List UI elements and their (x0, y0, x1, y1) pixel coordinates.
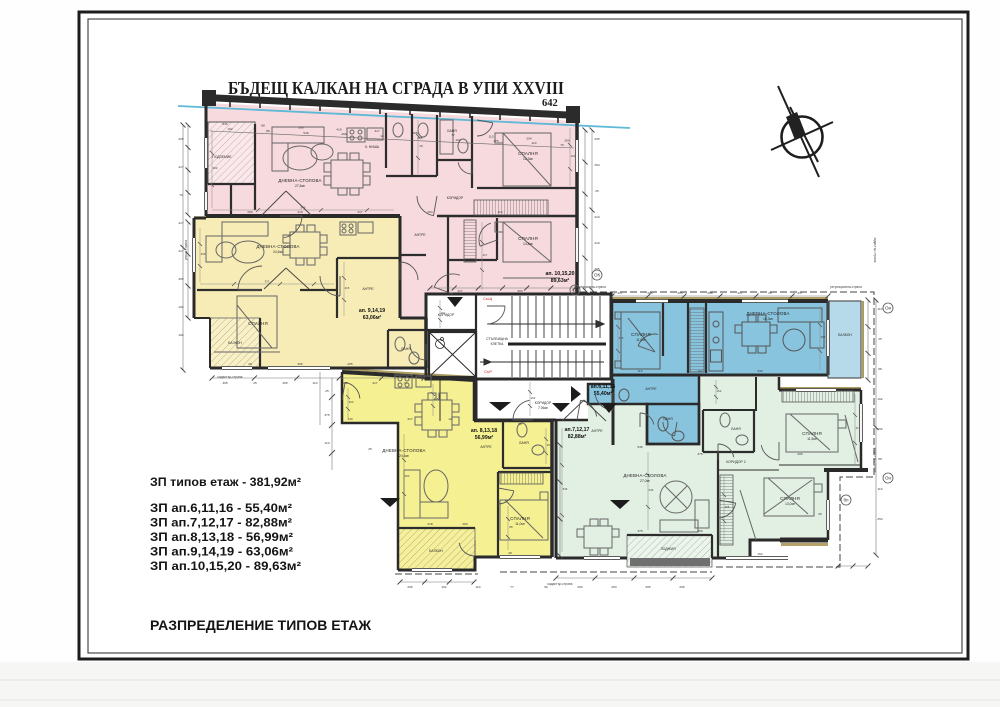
svg-text:417: 417 (372, 381, 377, 385)
svg-text:110: 110 (313, 381, 318, 385)
svg-text:110: 110 (476, 585, 481, 589)
svg-text:КОРИДОР: КОРИДОР (447, 196, 464, 200)
svg-text:КЛЕТКА: КЛЕТКА (491, 342, 505, 346)
svg-text:110: 110 (325, 441, 330, 445)
svg-text:254: 254 (821, 335, 826, 339)
svg-text:110: 110 (638, 369, 643, 373)
svg-text:77: 77 (403, 381, 407, 385)
svg-text:ЗП ап.6,11,16 - 55,40м²: ЗП ап.6,11,16 - 55,40м² (150, 501, 292, 515)
svg-text:162: 162 (227, 127, 232, 131)
svg-text:К. НИША: К. НИША (365, 145, 380, 149)
svg-text:288: 288 (707, 291, 712, 295)
svg-text:305: 305 (412, 131, 417, 135)
svg-text:162: 162 (531, 396, 536, 400)
svg-text:ап. 8,13,18: ап. 8,13,18 (471, 428, 497, 434)
svg-text:110: 110 (878, 487, 883, 491)
svg-text:СПАЛНЯ: СПАЛНЯ (248, 321, 268, 326)
svg-text:102: 102 (342, 381, 347, 385)
svg-text:417: 417 (178, 221, 183, 225)
svg-text:ДНЕВНА-СТОЛОВА: ДНЕВНА-СТОЛОВА (382, 448, 425, 453)
svg-text:110: 110 (878, 307, 883, 311)
svg-text:кадастър-страна: кадастър-страна (873, 238, 877, 263)
svg-text:7,06м²: 7,06м² (538, 406, 549, 410)
svg-text:205: 205 (797, 452, 802, 456)
svg-text:БАЛКОН: БАЛКОН (228, 341, 242, 345)
svg-text:11,0м²: 11,0м² (515, 522, 526, 526)
svg-text:546: 546 (303, 131, 308, 135)
svg-text:Он: Он (885, 476, 892, 481)
svg-text:88: 88 (266, 129, 270, 133)
svg-text:340: 340 (347, 417, 352, 421)
svg-text:305: 305 (725, 505, 730, 509)
svg-text:18,3м²: 18,3м² (763, 317, 774, 321)
svg-text:ЗП ап.9,14,19 - 63,06м²: ЗП ап.9,14,19 - 63,06м² (150, 545, 293, 559)
svg-text:25: 25 (595, 189, 599, 193)
svg-text:162: 162 (757, 552, 762, 556)
svg-text:417: 417 (797, 291, 802, 295)
svg-text:205: 205 (178, 137, 183, 141)
svg-text:СПАЛНЯ: СПАЛНЯ (518, 151, 538, 156)
svg-text:СъЩ: СъЩ (483, 296, 492, 301)
svg-text:кадастър-страна: кадастър-страна (218, 375, 243, 379)
svg-text:ЛОДЖИЯ: ЛОДЖИЯ (660, 547, 676, 551)
svg-text:417: 417 (617, 291, 622, 295)
svg-text:ОК: ОК (594, 273, 601, 278)
svg-text:СТЪЛБИЩНА: СТЪЛБИЩНА (486, 337, 509, 341)
svg-text:110: 110 (498, 210, 503, 214)
svg-text:205: 205 (677, 291, 682, 295)
svg-text:ПОДЗЕМИЕ: ПОДЗЕМИЕ (212, 155, 232, 159)
svg-text:24,6м²: 24,6м² (399, 454, 410, 458)
svg-text:27,6м²: 27,6м² (295, 184, 306, 188)
svg-text:КОРИДОР 2: КОРИДОР 2 (726, 460, 745, 464)
svg-text:417: 417 (457, 289, 462, 293)
svg-text:375: 375 (697, 452, 702, 456)
svg-text:БЪДЕЩ КАЛКАН НА СГРАДА В УПИ X: БЪДЕЩ КАЛКАН НА СГРАДА В УПИ XXVIII (228, 78, 564, 98)
svg-text:546: 546 (222, 122, 227, 126)
svg-text:205: 205 (407, 585, 412, 589)
svg-text:77: 77 (510, 585, 514, 589)
svg-text:КОРИДОР: КОРИДОР (535, 401, 552, 405)
svg-text:12,3м²: 12,3м² (523, 157, 534, 161)
svg-text:375: 375 (265, 280, 270, 284)
svg-text:70: 70 (179, 193, 183, 197)
svg-text:205: 205 (347, 362, 352, 366)
svg-text:205: 205 (645, 585, 650, 589)
svg-text:БАНЯ: БАНЯ (401, 347, 411, 351)
svg-text:254: 254 (526, 137, 531, 141)
svg-text:25: 25 (768, 291, 772, 295)
svg-text:БАЛКОН: БАЛКОН (429, 549, 443, 553)
svg-text:БАЛКОН: БАЛКОН (838, 333, 852, 337)
svg-text:417: 417 (407, 417, 412, 421)
svg-text:регулационна-страна: регулационна-страна (574, 285, 606, 289)
svg-text:305: 305 (222, 381, 227, 385)
svg-text:АНТРЕ: АНТРЕ (362, 287, 374, 291)
svg-text:205: 205 (647, 291, 652, 295)
svg-text:415: 415 (619, 336, 624, 340)
svg-text:417: 417 (374, 129, 379, 133)
svg-text:218: 218 (427, 522, 432, 526)
svg-text:102: 102 (178, 305, 183, 309)
svg-text:303: 303 (349, 400, 354, 404)
svg-text:260: 260 (577, 585, 582, 589)
svg-text:88: 88 (878, 457, 882, 461)
svg-text:СПАЛНЯ: СПАЛНЯ (780, 496, 800, 501)
svg-text:340: 340 (757, 369, 762, 373)
svg-text:417: 417 (483, 253, 488, 257)
svg-text:254: 254 (427, 210, 432, 214)
svg-text:303: 303 (201, 252, 206, 256)
svg-text:546: 546 (563, 487, 568, 491)
svg-text:260: 260 (405, 474, 410, 478)
svg-text:110: 110 (532, 141, 537, 145)
svg-text:регулационна-страна: регулационна-страна (830, 285, 862, 289)
svg-text:12: 12 (380, 134, 384, 138)
svg-text:546: 546 (649, 488, 654, 492)
svg-text:642: 642 (542, 98, 558, 109)
svg-text:БАНЯ: БАНЯ (731, 427, 741, 431)
svg-text:102: 102 (178, 333, 183, 337)
svg-text:27,0м²: 27,0м² (640, 479, 651, 483)
svg-text:260: 260 (462, 522, 467, 526)
svg-text:улица-страна: улица-страна (184, 240, 188, 260)
svg-text:55,40м²: 55,40м² (594, 391, 613, 397)
svg-text:102: 102 (455, 138, 460, 142)
svg-text:303: 303 (517, 289, 522, 293)
svg-text:АНТРЕ: АНТРЕ (480, 445, 492, 449)
svg-text:28: 28 (419, 144, 423, 148)
svg-text:28: 28 (508, 551, 512, 555)
svg-text:162: 162 (877, 397, 882, 401)
svg-text:417: 417 (357, 210, 362, 214)
svg-text:ЗП типов етаж - 381,92м²: ЗП типов етаж - 381,92м² (150, 475, 301, 489)
svg-text:13,0м²: 13,0м² (785, 502, 796, 506)
svg-text:63,06м²: 63,06м² (363, 315, 382, 321)
svg-text:ЗП ап.10,15,20 - 89,63м²: ЗП ап.10,15,20 - 89,63м² (150, 559, 301, 573)
svg-text:205: 205 (594, 137, 599, 141)
svg-text:БАНЯ: БАНЯ (663, 417, 673, 421)
svg-text:305: 305 (297, 362, 302, 366)
svg-text:110: 110 (489, 135, 494, 139)
svg-text:ЗП ап.7,12,17 - 82,88м²: ЗП ап.7,12,17 - 82,88м² (150, 516, 292, 530)
svg-text:162: 162 (717, 389, 722, 393)
svg-text:СПАЛНЯ: СПАЛНЯ (518, 236, 538, 241)
svg-text:410: 410 (594, 215, 599, 219)
svg-text:АНТРЕ: АНТРЕ (591, 429, 603, 433)
svg-text:бл: бл (843, 498, 848, 503)
svg-text:СъР: СъР (484, 369, 492, 374)
svg-text:375: 375 (637, 529, 642, 533)
svg-text:ДНЕВНА-СТОЛОВА: ДНЕВНА-СТОЛОВА (623, 473, 666, 478)
svg-text:70: 70 (560, 143, 564, 147)
svg-text:415: 415 (345, 286, 350, 290)
svg-text:кадастър-страна: кадастър-страна (548, 582, 573, 586)
svg-text:417: 417 (178, 165, 183, 169)
svg-text:14,8м²: 14,8м² (523, 242, 534, 246)
svg-text:375: 375 (324, 413, 329, 417)
svg-text:205: 205 (679, 585, 684, 589)
svg-text:82,88м²: 82,88м² (568, 434, 587, 440)
svg-text:ЗП ап.8,13,18 - 56,99м²: ЗП ап.8,13,18 - 56,99м² (150, 530, 293, 544)
svg-text:88: 88 (509, 525, 513, 529)
svg-text:25: 25 (325, 389, 329, 393)
svg-text:303: 303 (213, 166, 218, 170)
svg-text:410: 410 (336, 127, 341, 131)
svg-text:БАНЯ: БАНЯ (519, 441, 529, 445)
svg-text:288: 288 (417, 136, 422, 140)
svg-text:410: 410 (297, 210, 302, 214)
svg-text:ап. 9,14,19: ап. 9,14,19 (359, 308, 385, 314)
svg-text:ДНЕВНА-СТОЛОВА: ДНЕВНА-СТОЛОВА (746, 311, 789, 316)
svg-text:260: 260 (697, 529, 702, 533)
svg-text:254: 254 (877, 517, 882, 521)
svg-text:305: 305 (282, 381, 287, 385)
svg-text:375: 375 (493, 139, 498, 143)
svg-text:АНТРЕ: АНТРЕ (414, 233, 426, 237)
svg-text:260: 260 (247, 210, 252, 214)
svg-text:546: 546 (637, 445, 642, 449)
svg-text:12: 12 (448, 417, 452, 421)
svg-text:25: 25 (368, 447, 372, 451)
svg-text:ДНЕВНА-СТОЛОВА: ДНЕВНА-СТОЛОВА (278, 178, 321, 183)
svg-text:88: 88 (261, 124, 265, 128)
svg-text:СПАЛНЯ: СПАЛНЯ (510, 516, 530, 521)
svg-text:288: 288 (298, 126, 303, 130)
svg-text:ап.7,12,17: ап.7,12,17 (565, 427, 590, 433)
svg-text:ДНЕВНА-СТОЛОВА: ДНЕВНА-СТОЛОВА (256, 244, 299, 249)
svg-text:303: 303 (547, 443, 552, 447)
svg-text:56,99м²: 56,99м² (475, 435, 494, 441)
svg-text:11,5м²: 11,5м² (807, 437, 818, 441)
svg-text:24,5м²: 24,5м² (273, 250, 284, 254)
svg-text:88: 88 (878, 367, 882, 371)
svg-text:305: 305 (178, 277, 183, 281)
svg-text:СПАЛНЯ: СПАЛНЯ (802, 431, 822, 436)
svg-text:РАЗПРЕДЕЛЕНИЕ ТИПОВ ЕТАЖ: РАЗПРЕДЕЛЕНИЕ ТИПОВ ЕТАЖ (150, 617, 371, 633)
svg-text:ап. 10,15,20: ап. 10,15,20 (545, 271, 574, 277)
svg-text:410: 410 (594, 241, 599, 245)
svg-text:415: 415 (434, 397, 439, 401)
svg-text:90: 90 (518, 422, 522, 426)
svg-text:ап.6,11,16: ап.6,11,16 (591, 384, 616, 390)
svg-text:102: 102 (697, 369, 702, 373)
svg-text:260: 260 (341, 132, 346, 136)
svg-text:77: 77 (451, 133, 455, 137)
svg-text:кадастър-страна: кадастър-страна (873, 448, 877, 473)
svg-text:25: 25 (253, 381, 257, 385)
svg-text:Ои: Ои (885, 306, 892, 311)
svg-text:260: 260 (564, 138, 569, 142)
svg-text:25: 25 (818, 512, 822, 516)
svg-text:28: 28 (248, 362, 252, 366)
svg-text:КОРИДОР: КОРИДОР (438, 313, 455, 317)
svg-text:СПАЛНЯ: СПАЛНЯ (631, 332, 651, 337)
svg-text:162: 162 (441, 585, 446, 589)
svg-text:89,63м²: 89,63м² (551, 278, 570, 284)
svg-text:417: 417 (737, 291, 742, 295)
svg-text:254: 254 (611, 585, 616, 589)
svg-text:102: 102 (877, 427, 882, 431)
svg-text:25: 25 (878, 337, 882, 341)
svg-text:АНТРЕ: АНТРЕ (645, 387, 657, 391)
svg-text:254: 254 (594, 163, 599, 167)
